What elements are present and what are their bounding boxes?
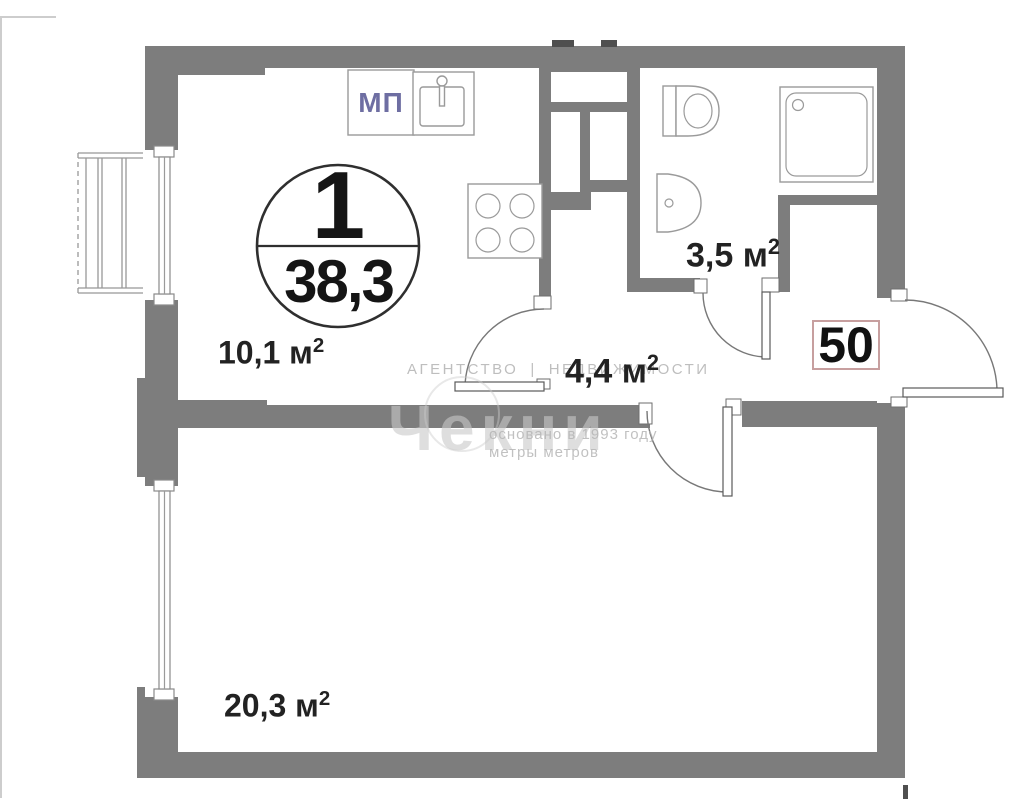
apartment-number-badge: 50 — [812, 320, 880, 370]
unit-total-area: 38,3 — [258, 252, 419, 312]
stove-icon — [468, 184, 542, 258]
watermark-founded: основано в 1993 году — [489, 426, 657, 443]
area-label-kitchen: 10,1 м2 — [218, 334, 324, 372]
watermark-slogan: метры метров — [489, 444, 599, 461]
bathroom-door-icon — [694, 278, 779, 359]
area-label-hallway: 4,4 м2 — [565, 350, 659, 391]
area-label-living: 20,3 м2 — [224, 687, 330, 725]
entrance-door-icon — [891, 289, 1003, 407]
kitchen-window-icon — [154, 146, 174, 305]
kitchen-sink-icon — [413, 72, 474, 135]
toilet-icon — [663, 86, 719, 136]
floor-plan: АГЕНТСТВО | НЕДВИЖИМОСТИ Чекни основано … — [0, 0, 1024, 805]
apartment-number: 50 — [818, 316, 874, 374]
watermark-divider: | — [530, 361, 536, 378]
area-label-bathroom: 3,5 м2 — [686, 234, 780, 275]
unit-rooms-count: 1 — [258, 158, 419, 254]
balcony-icon — [78, 153, 143, 293]
shower-icon — [780, 87, 873, 182]
bathroom-sink-icon — [657, 174, 701, 232]
watermark-agency-row: АГЕНТСТВО | НЕДВИЖИМОСТИ — [407, 361, 710, 378]
living-room-door-icon — [639, 399, 741, 496]
living-room-window-icon — [154, 480, 174, 700]
window-block-marking: МП — [348, 70, 414, 135]
